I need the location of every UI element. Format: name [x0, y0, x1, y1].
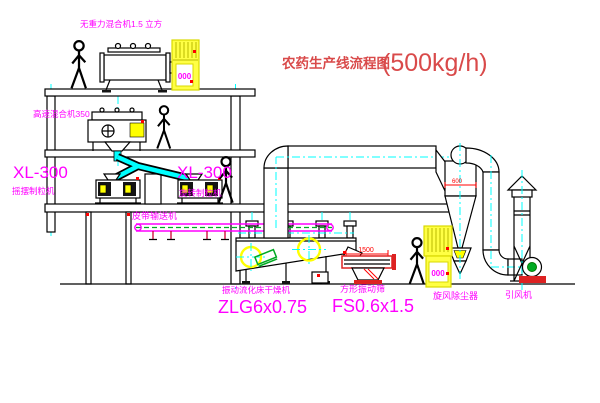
cabinet-display: 000	[431, 269, 445, 278]
granulator-right-name: 旋转制粒机	[179, 188, 222, 198]
control-cabinet-2: 000	[424, 226, 452, 287]
flow-diagram-canvas: 000	[0, 0, 600, 403]
sieve-dim-label: 1500	[358, 247, 374, 254]
support-pillar	[145, 174, 161, 204]
granulator-left-model: XL-300	[13, 163, 68, 182]
dryer-model-label: ZLG6x0.75	[218, 297, 307, 317]
worker-figure	[157, 106, 170, 148]
cyclone-name-label: 旋风除尘器	[433, 290, 478, 301]
fan-name-label: 引风机	[505, 289, 532, 300]
cabinet-display: 000	[178, 72, 192, 81]
worker-figure	[72, 41, 86, 88]
granulator-right-model: XL-300	[177, 163, 232, 182]
worker-figure	[410, 238, 424, 284]
floor-slab-top	[45, 89, 255, 96]
high-speed-mixer-label: 高速混合机350	[33, 109, 90, 119]
gravity-mixer-label: 无重力混合机1.5 立方	[80, 19, 162, 29]
granulator-left-name: 摇摆制粒机	[12, 186, 55, 196]
sieve-name-label: 方形振动筛	[340, 283, 385, 294]
diagram-title-capacity: (500kg/h)	[382, 49, 488, 77]
belt-conveyor-label: 皮带输送机	[132, 210, 177, 221]
control-cabinet-1: 000	[172, 40, 199, 90]
fluid-bed-dryer-machine	[236, 212, 362, 284]
sieve-model-label: FS0.6x1.5	[332, 296, 414, 316]
diagram-title: 农药生产线流程图	[281, 55, 390, 71]
floor-slab-ground	[45, 204, 470, 212]
pesticide-line-drawing: 000	[0, 0, 600, 403]
gravity-mixer	[100, 44, 182, 93]
cyclone-dim-label: 600	[452, 179, 463, 185]
dryer-name-label: 振动流化床干燥机	[222, 285, 291, 295]
floor-slab-middle	[45, 150, 255, 157]
